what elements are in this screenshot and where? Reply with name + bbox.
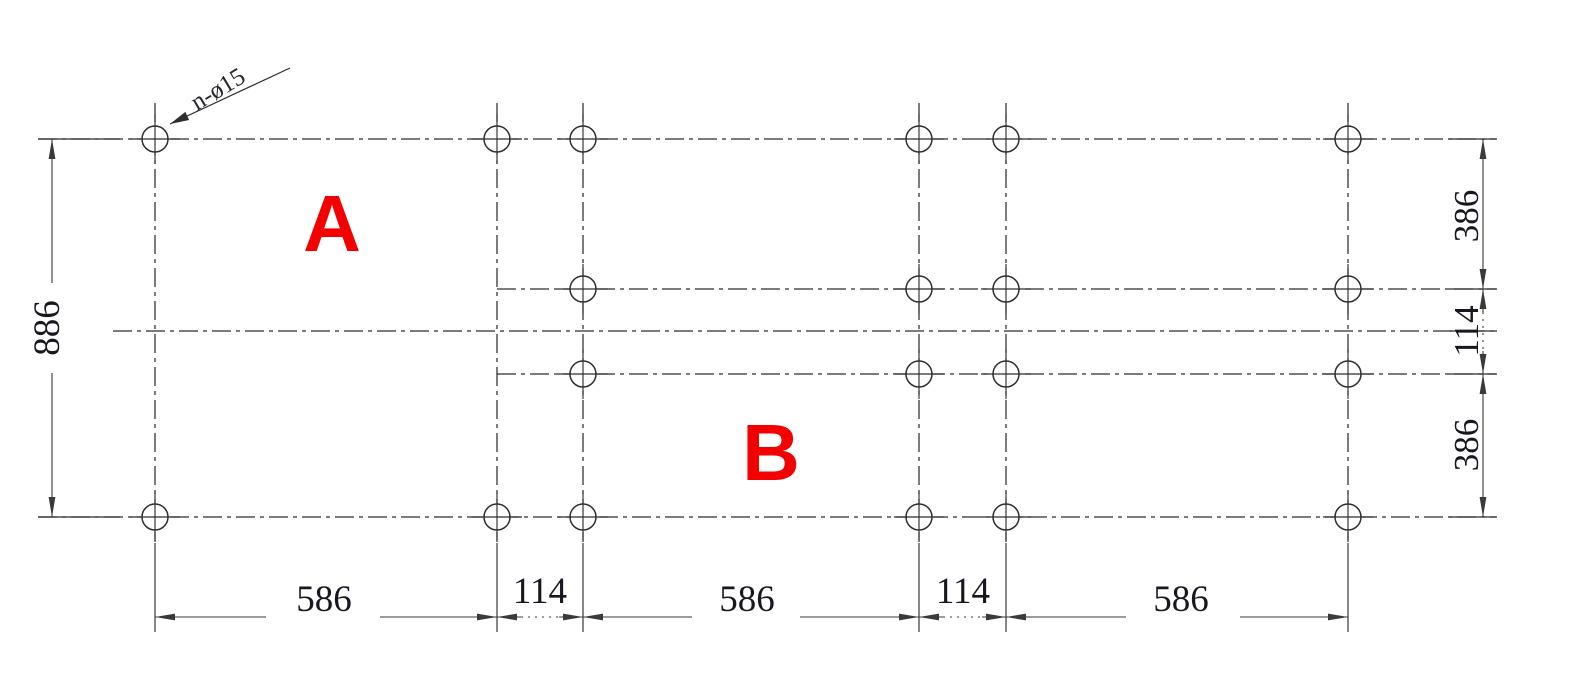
- dim-label-horizontal-pitch: 586: [719, 579, 775, 620]
- dimension-arrow-bottom: [497, 614, 517, 621]
- dim-label-vertical-pitch: 386: [1447, 419, 1486, 472]
- dimension-arrow-bottom: [1328, 614, 1348, 621]
- dimension-arrow-right: [1480, 497, 1487, 517]
- dimension-arrow-bottom: [899, 614, 919, 621]
- dimension-arrow-bottom: [155, 614, 175, 621]
- dimension-arrow-bottom: [986, 614, 1006, 621]
- dim-label-overall-height: 886: [27, 300, 68, 356]
- dimension-arrow-left: [49, 139, 56, 159]
- engineering-drawing-page: 886386114386586114586114586n-ø15AB: [0, 0, 1588, 696]
- dim-label-horizontal-pitch: 586: [1153, 579, 1209, 620]
- mounting-hole-layout-drawing: 886386114386586114586114586n-ø15AB: [0, 0, 1588, 696]
- region-label-a: A: [303, 179, 361, 268]
- dimension-arrow-bottom: [583, 614, 603, 621]
- dim-label-vertical-pitch: 386: [1447, 190, 1486, 243]
- dim-label-horizontal-pitch: 586: [296, 579, 352, 620]
- dimension-arrow-right: [1480, 139, 1487, 159]
- dimension-arrow-right: [1480, 269, 1487, 289]
- dimension-arrow-bottom: [477, 614, 497, 621]
- dimension-arrow-bottom: [1006, 614, 1026, 621]
- dim-label-vertical-pitch: 114: [1447, 305, 1486, 356]
- dim-label-horizontal-pitch: 114: [936, 571, 990, 612]
- dimension-arrow-left: [49, 497, 56, 517]
- dimension-arrow-bottom: [563, 614, 583, 621]
- dimension-arrow-right: [1480, 374, 1487, 394]
- hole-callout-label: n-ø15: [186, 63, 250, 116]
- dimension-arrow-bottom: [919, 614, 939, 621]
- region-label-b: B: [742, 408, 800, 497]
- leader-arrow: [170, 112, 189, 124]
- dim-label-horizontal-pitch: 114: [513, 571, 567, 612]
